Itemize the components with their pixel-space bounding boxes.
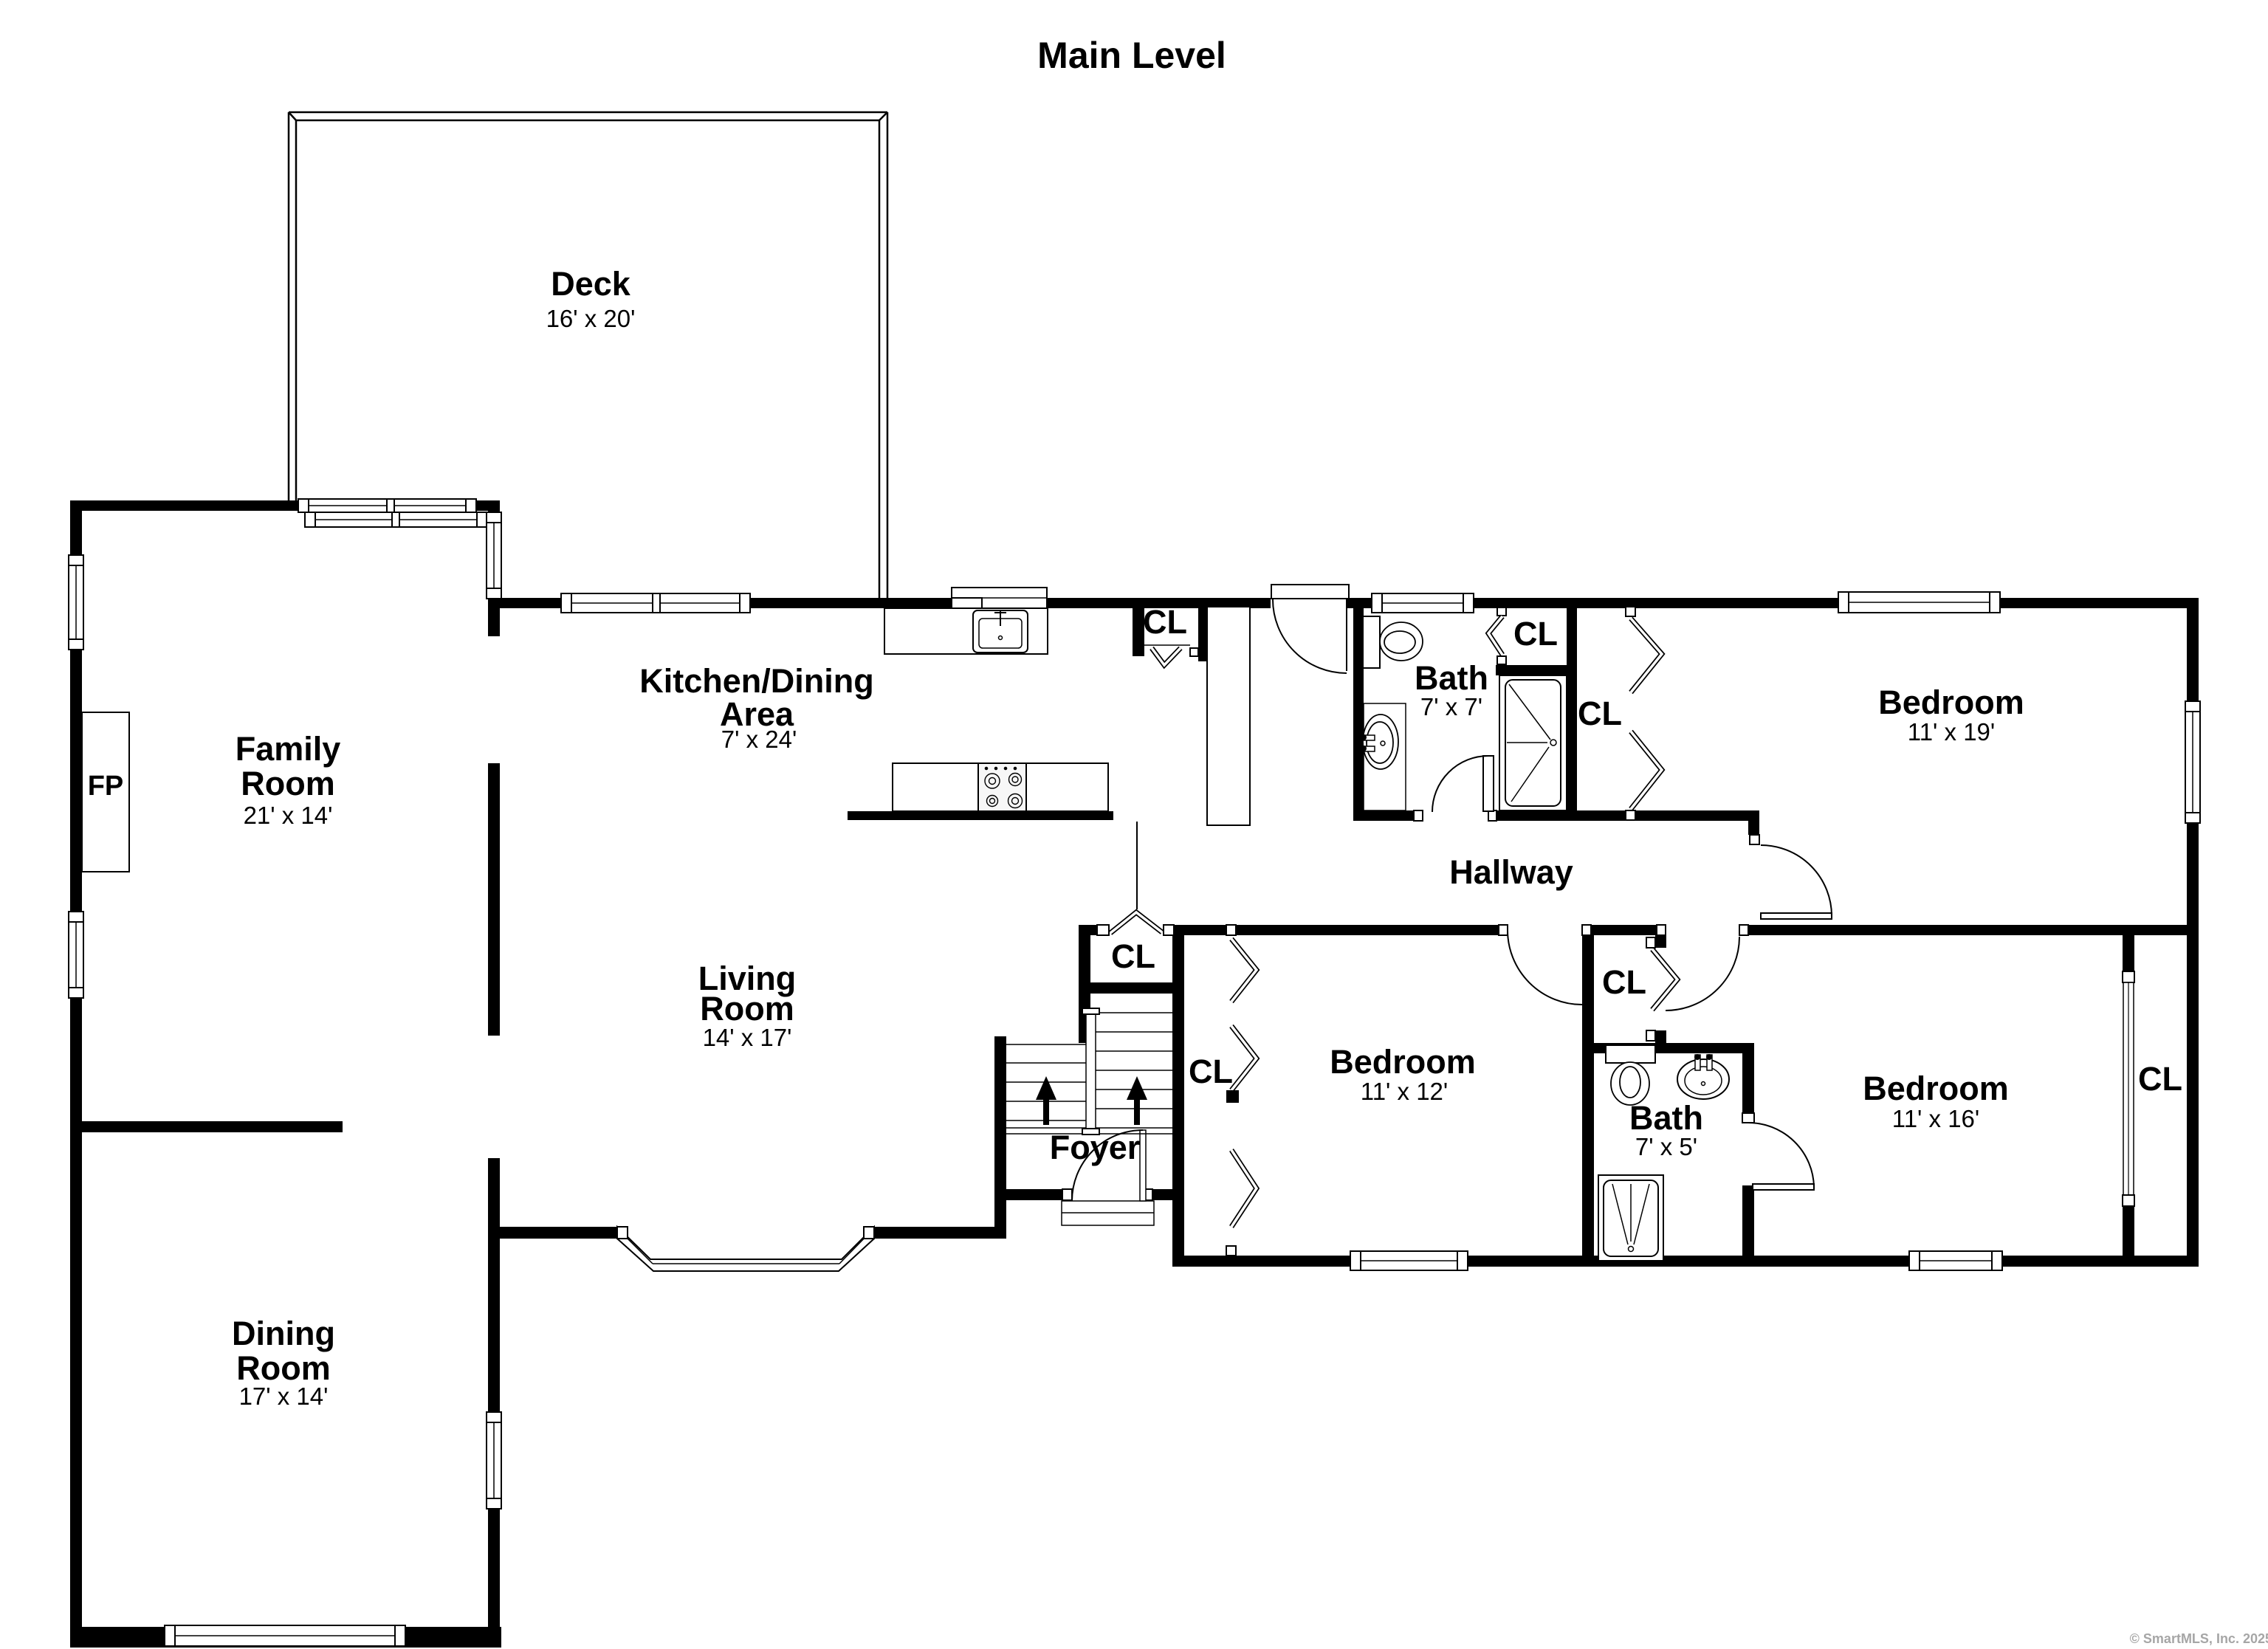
- svg-text:11' x 16': 11' x 16': [1892, 1105, 1979, 1132]
- svg-text:14' x 17': 14' x 17': [703, 1024, 792, 1051]
- svg-text:CL: CL: [2138, 1060, 2182, 1098]
- svg-text:CL: CL: [1143, 603, 1187, 641]
- svg-text:Room: Room: [700, 990, 794, 1027]
- svg-text:CL: CL: [1513, 615, 1558, 653]
- svg-text:7' x 24': 7' x 24': [721, 726, 797, 753]
- svg-text:Foyer: Foyer: [1050, 1129, 1141, 1166]
- svg-text:CL: CL: [1602, 963, 1646, 1001]
- svg-text:Bath: Bath: [1415, 659, 1488, 697]
- svg-text:FP: FP: [88, 771, 124, 802]
- svg-text:16' x 20': 16' x 20': [546, 305, 636, 332]
- svg-text:Dining: Dining: [232, 1315, 335, 1352]
- svg-text:Bedroom: Bedroom: [1330, 1043, 1476, 1081]
- svg-text:7' x 7': 7' x 7': [1420, 693, 1482, 720]
- svg-text:Room: Room: [241, 765, 335, 802]
- svg-text:11' x 19': 11' x 19': [1908, 718, 1995, 746]
- svg-text:7' x 5': 7' x 5': [1635, 1133, 1697, 1160]
- svg-text:11' x 12': 11' x 12': [1361, 1078, 1448, 1105]
- svg-text:17' x 14': 17' x 14': [239, 1383, 329, 1410]
- svg-text:© SmartMLS, Inc. 2025: © SmartMLS, Inc. 2025: [2130, 1631, 2268, 1646]
- svg-text:Kitchen/Dining: Kitchen/Dining: [639, 662, 873, 700]
- svg-text:Bath: Bath: [1629, 1099, 1703, 1137]
- svg-text:CL: CL: [1189, 1053, 1233, 1090]
- svg-text:Hallway: Hallway: [1449, 853, 1573, 891]
- svg-text:Family: Family: [236, 730, 341, 768]
- svg-text:CL: CL: [1111, 937, 1155, 975]
- svg-text:Room: Room: [236, 1349, 331, 1387]
- svg-text:CL: CL: [1578, 695, 1622, 732]
- svg-text:21' x 14': 21' x 14': [244, 802, 333, 829]
- svg-text:Bedroom: Bedroom: [1878, 684, 2024, 721]
- svg-text:Main Level: Main Level: [1037, 35, 1226, 76]
- svg-text:Bedroom: Bedroom: [1863, 1070, 2009, 1107]
- svg-text:Deck: Deck: [551, 265, 631, 303]
